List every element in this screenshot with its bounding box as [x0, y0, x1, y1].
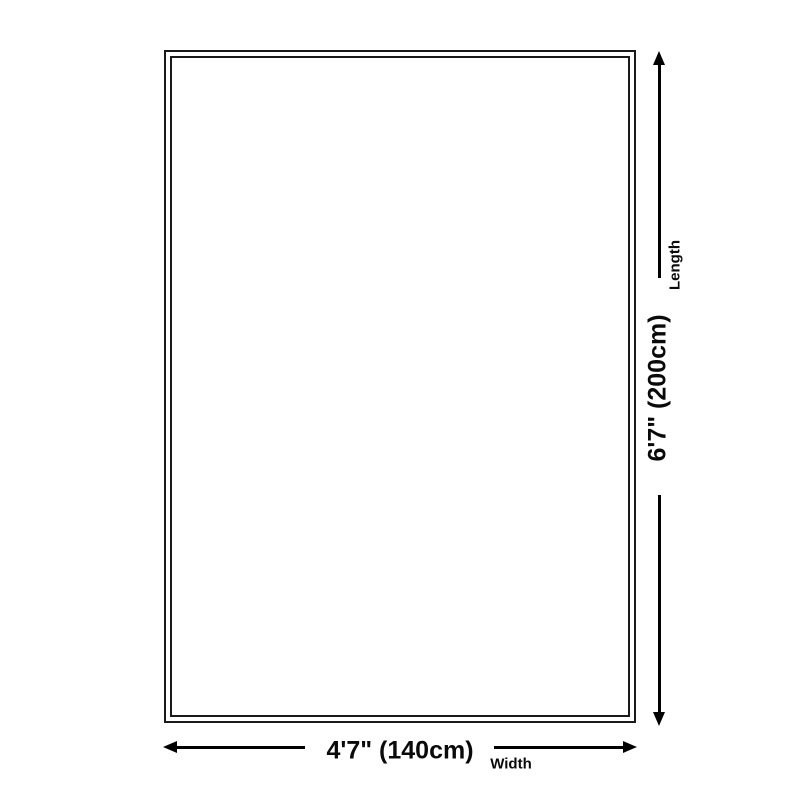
- arrow-right-icon: [623, 741, 637, 753]
- width-value: 4'7" (140cm): [326, 737, 473, 766]
- arrow-down-icon: [653, 712, 665, 726]
- dimension-diagram: Length 6'7" (200cm) 4'7" (140cm) Width: [0, 0, 800, 800]
- rug-outline: [164, 50, 636, 723]
- length-arrow-line-top: [658, 61, 661, 278]
- length-value: 6'7" (200cm): [644, 314, 673, 461]
- length-label: Length: [667, 240, 684, 290]
- width-label: Width: [490, 756, 532, 773]
- width-arrow-line-right: [494, 746, 625, 749]
- length-arrow-line-bottom: [658, 495, 661, 714]
- width-arrow-line-left: [174, 746, 305, 749]
- rug-inner-border: [170, 56, 630, 717]
